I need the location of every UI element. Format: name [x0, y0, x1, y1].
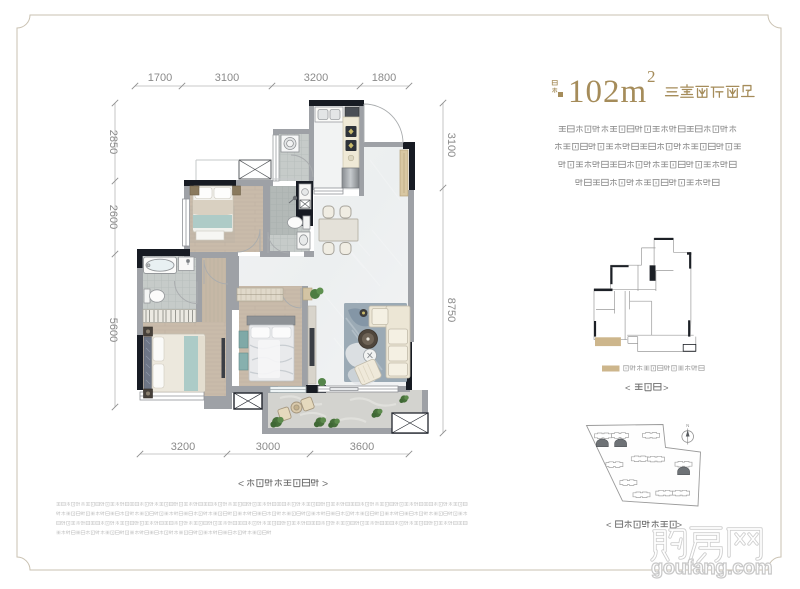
svg-text:<: <	[625, 383, 631, 394]
svg-text:3100: 3100	[445, 133, 457, 157]
svg-text:N: N	[686, 423, 689, 428]
svg-text:3000: 3000	[256, 441, 280, 453]
svg-text:2: 2	[647, 67, 656, 86]
svg-text:3600: 3600	[350, 441, 374, 453]
svg-text:102m: 102m	[568, 74, 647, 110]
svg-text:1800: 1800	[372, 72, 396, 84]
svg-text:3200: 3200	[304, 72, 328, 84]
svg-text:2600: 2600	[107, 205, 119, 229]
svg-text:<: <	[606, 520, 612, 531]
svg-text:>: >	[663, 383, 669, 394]
svg-text:2850: 2850	[107, 130, 119, 154]
svg-text:5600: 5600	[107, 318, 119, 342]
svg-text:3100: 3100	[215, 72, 239, 84]
svg-text:8750: 8750	[445, 298, 457, 322]
svg-text:3200: 3200	[171, 441, 195, 453]
svg-text:goufang.com: goufang.com	[651, 557, 772, 579]
svg-text:1700: 1700	[148, 72, 172, 84]
svg-text:>: >	[322, 478, 328, 490]
svg-text:<: <	[238, 478, 244, 490]
